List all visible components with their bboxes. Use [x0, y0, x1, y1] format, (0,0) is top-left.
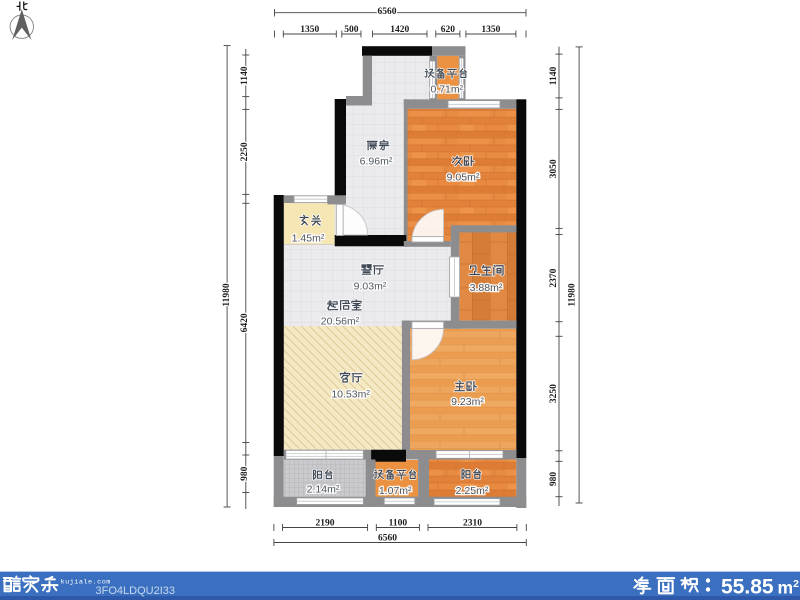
svg-text:2370: 2370 [549, 268, 559, 287]
svg-text:1350: 1350 [300, 25, 319, 35]
svg-text:9.23m²: 9.23m² [451, 396, 484, 408]
svg-text:2190: 2190 [316, 519, 335, 529]
svg-text:620: 620 [441, 25, 456, 35]
svg-text:2.25m²: 2.25m² [456, 485, 489, 497]
svg-text:3FO4LDQU2I33: 3FO4LDQU2I33 [96, 585, 175, 597]
svg-text:1.07m²: 1.07m² [379, 485, 412, 497]
svg-text:1140: 1140 [240, 66, 250, 85]
svg-text:11980: 11980 [222, 283, 232, 306]
svg-text:2.14m²: 2.14m² [307, 484, 340, 496]
svg-text:1140: 1140 [549, 67, 559, 86]
svg-text:9.03m²: 9.03m² [354, 280, 387, 292]
svg-text:20.56m²: 20.56m² [321, 316, 360, 328]
svg-text:1420: 1420 [390, 25, 409, 35]
svg-text:1350: 1350 [481, 25, 500, 35]
svg-text:6560: 6560 [378, 7, 397, 17]
svg-text:980: 980 [240, 466, 250, 481]
svg-text:55.85: 55.85 [721, 576, 774, 599]
svg-text:500: 500 [344, 25, 359, 35]
svg-text:3.88m²: 3.88m² [470, 282, 503, 294]
svg-text:2310: 2310 [463, 519, 482, 529]
svg-text:2250: 2250 [240, 142, 250, 161]
svg-text:0.71m²: 0.71m² [430, 84, 463, 96]
svg-text:6.96m²: 6.96m² [360, 155, 393, 167]
svg-text:3050: 3050 [549, 159, 559, 178]
svg-text:11980: 11980 [567, 283, 577, 306]
svg-text:6420: 6420 [240, 313, 250, 332]
svg-text:9.05m²: 9.05m² [447, 171, 480, 183]
svg-text:6560: 6560 [378, 534, 397, 544]
svg-text:980: 980 [549, 472, 559, 487]
svg-text:1100: 1100 [389, 519, 408, 529]
svg-text:3250: 3250 [549, 384, 559, 403]
svg-text:1.45m²: 1.45m² [292, 233, 325, 245]
svg-text:10.53m²: 10.53m² [331, 389, 370, 401]
